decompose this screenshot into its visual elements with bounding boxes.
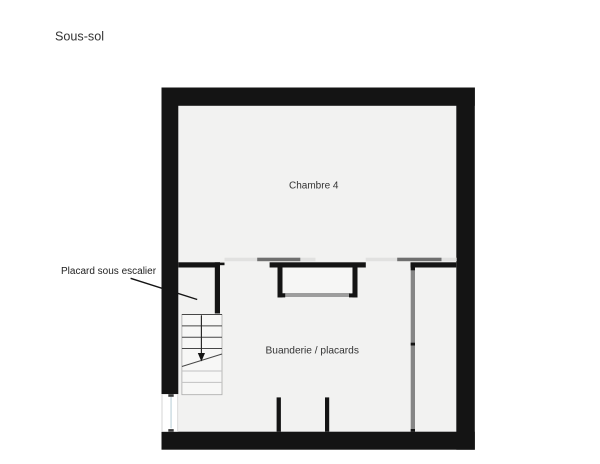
svg-text:Buanderie / placards: Buanderie / placards <box>266 346 359 357</box>
svg-text:Sous-sol: Sous-sol <box>55 29 104 43</box>
svg-text:Chambre 4: Chambre 4 <box>289 180 339 191</box>
svg-text:Placard sous escalier: Placard sous escalier <box>61 266 157 277</box>
